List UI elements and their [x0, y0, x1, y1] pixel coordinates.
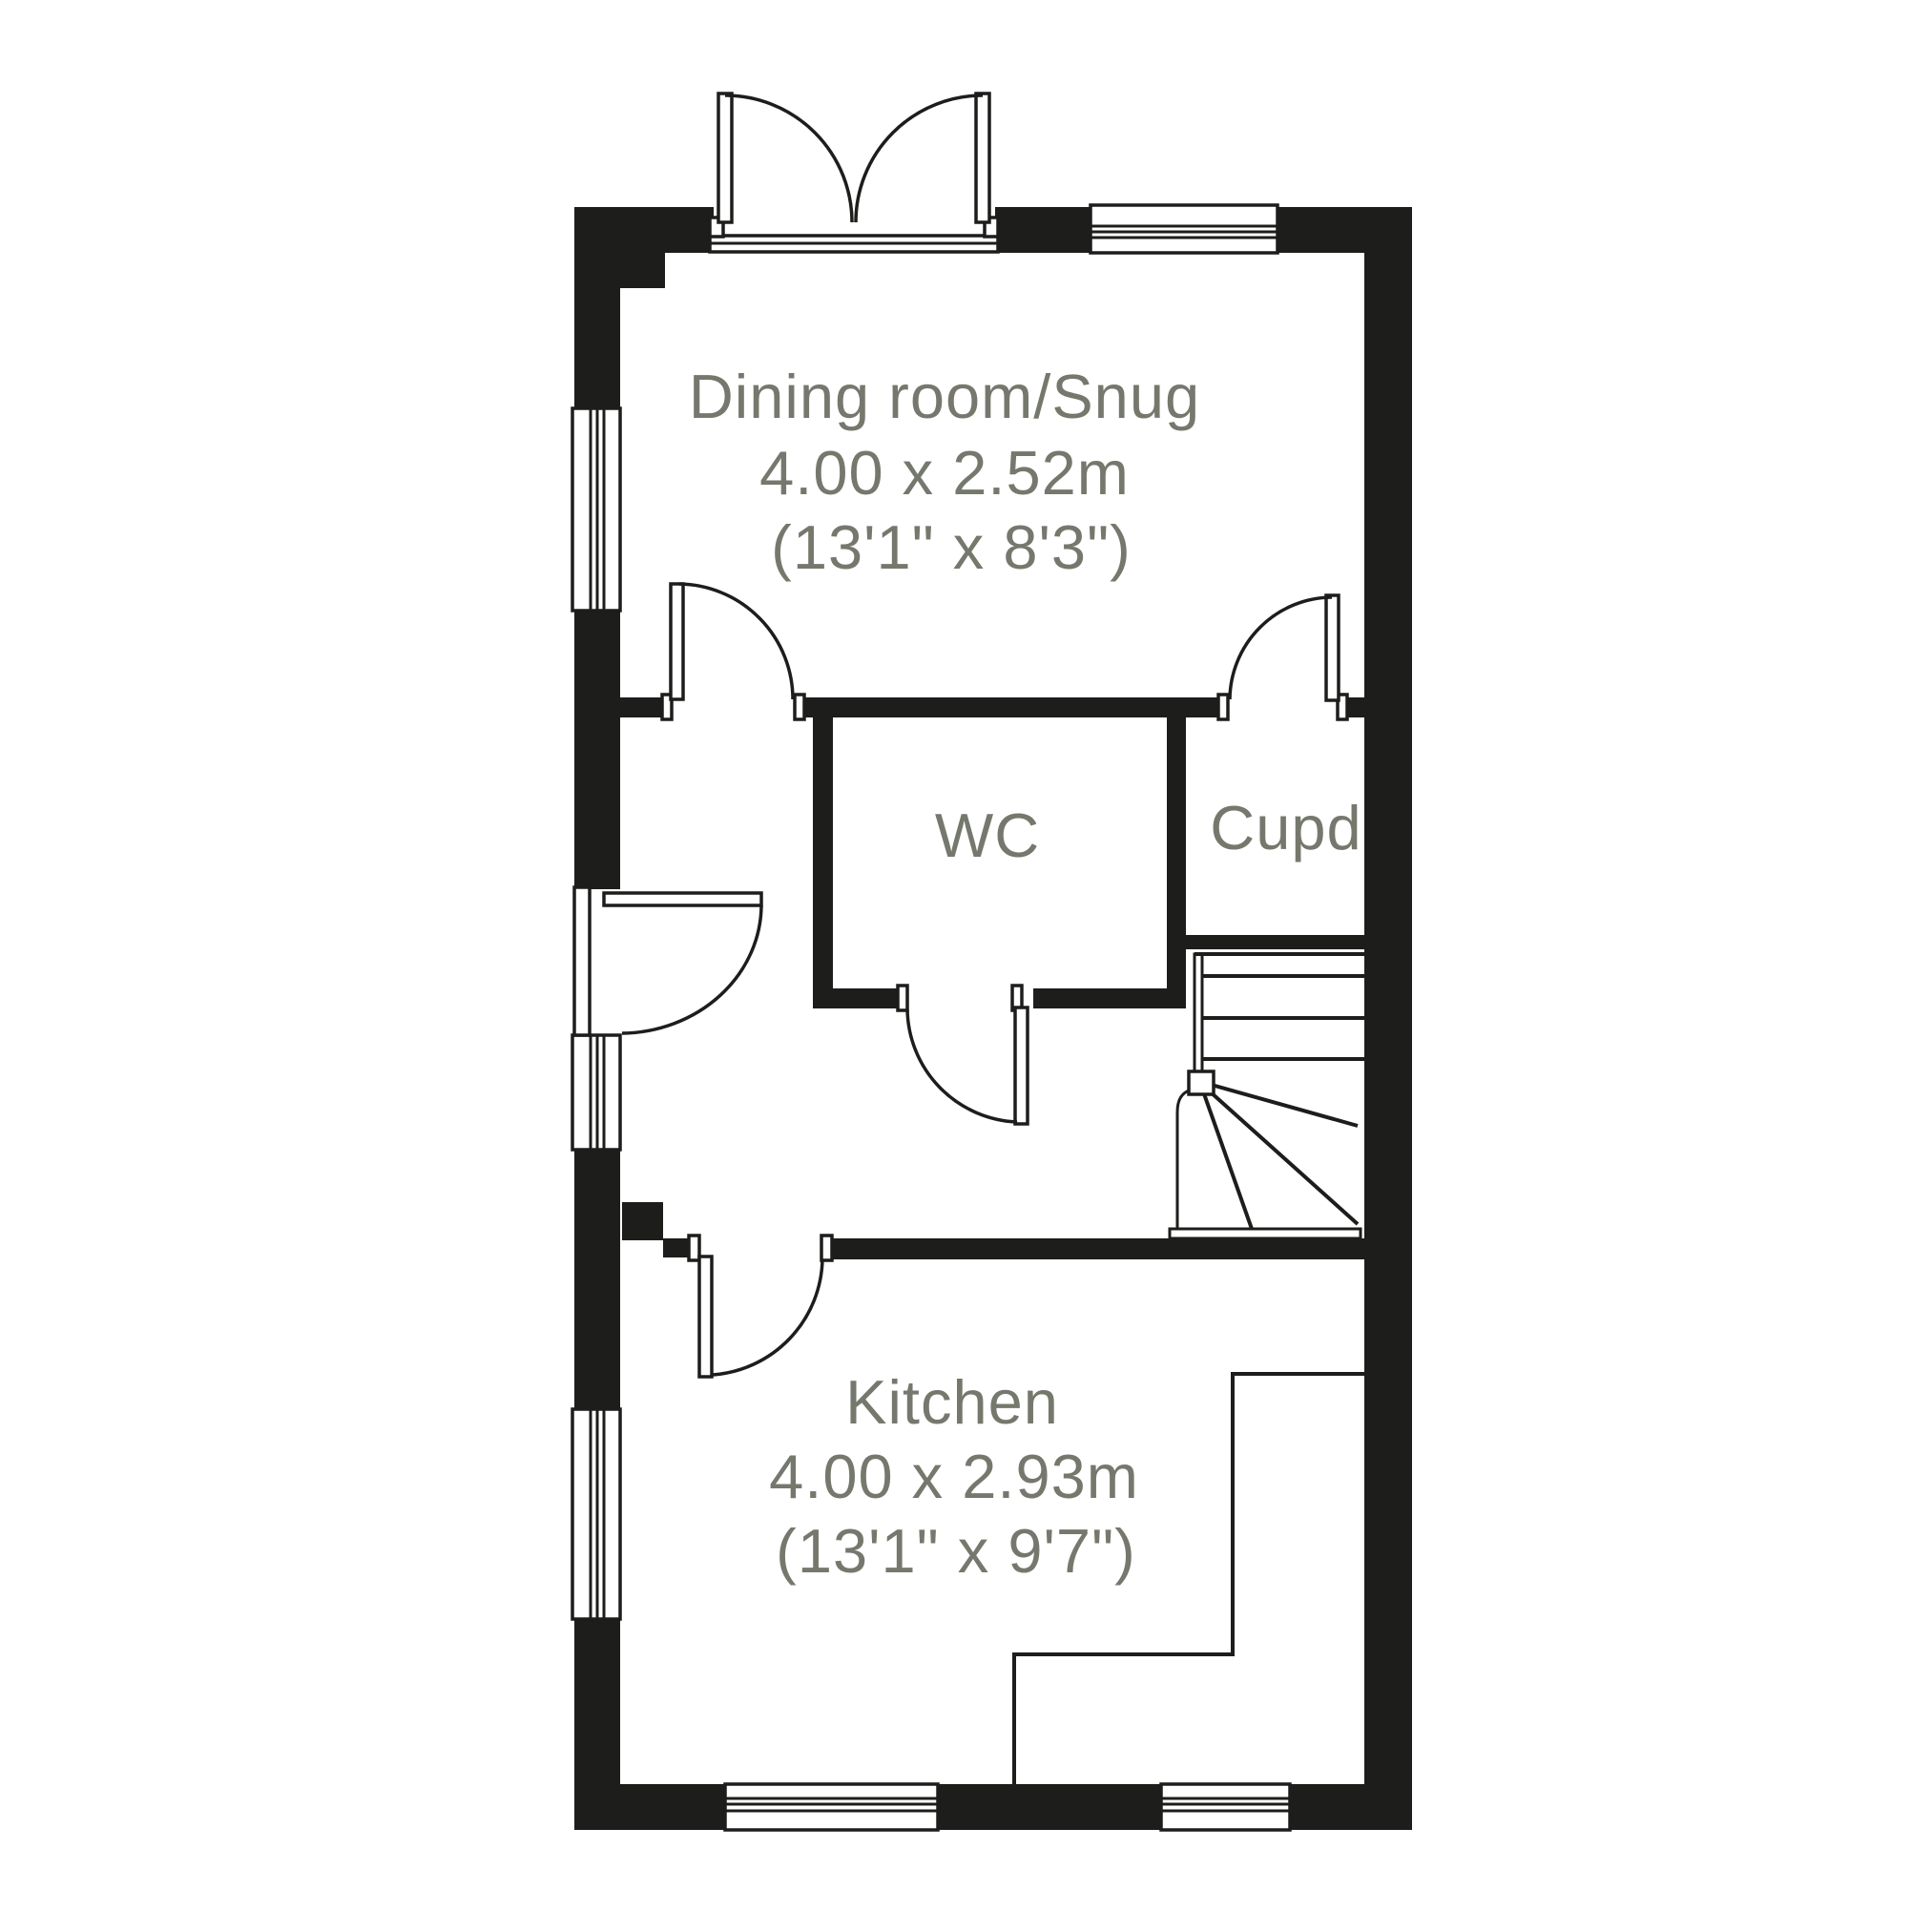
cupboard-door	[1218, 595, 1347, 719]
window-bottom-right	[1161, 1784, 1290, 1830]
cupboard-label: Cupd	[1210, 793, 1361, 862]
front-door	[574, 887, 761, 1035]
kitchen-size-metric: 4.00 x 2.93m	[769, 1442, 1139, 1511]
french-doors	[710, 93, 998, 252]
interior-walls	[620, 697, 1364, 1259]
window-left-hall	[572, 1035, 620, 1150]
dining-room-label: Dining room/Snug	[689, 362, 1200, 431]
dining-room-size-metric: 4.00 x 2.52m	[759, 438, 1130, 508]
window-bottom-left	[725, 1784, 938, 1830]
wc-label: WC	[935, 800, 1040, 870]
floorplan-page: Dining room/Snug 4.00 x 2.52m (13'1" x 8…	[0, 0, 1932, 1932]
window-left-dining	[572, 408, 620, 611]
kitchen-size-imperial: (13'1" x 9'7")	[776, 1516, 1136, 1586]
wc-door	[898, 986, 1028, 1124]
dining-door	[662, 584, 804, 719]
staircase	[1170, 954, 1364, 1238]
kitchen-label: Kitchen	[845, 1367, 1059, 1437]
window-top	[1091, 205, 1278, 253]
window-left-kitchen	[572, 1409, 620, 1619]
dining-room-size-imperial: (13'1" x 8'3")	[771, 512, 1132, 582]
floorplan-drawing: Dining room/Snug 4.00 x 2.52m (13'1" x 8…	[0, 0, 1932, 1932]
kitchen-door	[689, 1236, 832, 1377]
